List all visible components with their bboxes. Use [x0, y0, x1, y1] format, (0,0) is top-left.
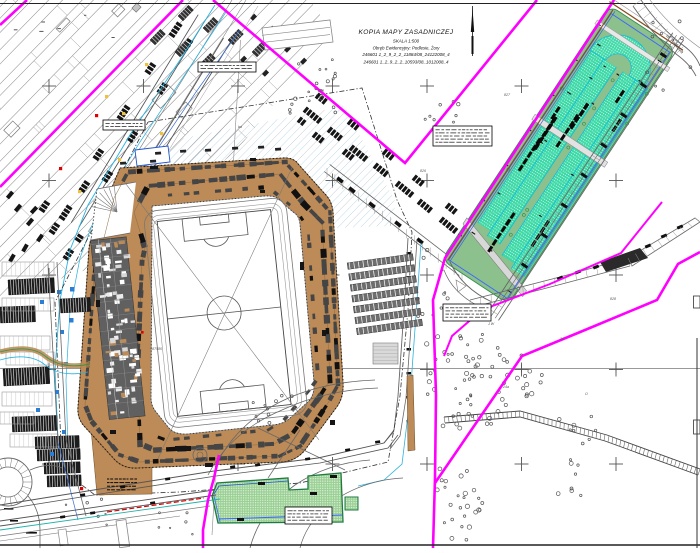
- svg-text:828: 828: [318, 89, 324, 93]
- svg-text:828: 828: [610, 297, 616, 301]
- svg-text:826: 826: [420, 169, 426, 173]
- svg-text:24a: 24a: [502, 385, 509, 389]
- svg-text:KOPIA MAPY ZASADNICZEJ: KOPIA MAPY ZASADNICZEJ: [359, 29, 454, 36]
- svg-text:827: 827: [504, 93, 511, 97]
- svg-text:246601 1_2_9_2_2_11884/08_2412: 246601 1_2_9_2_2_11884/08_24122008_4: [361, 52, 450, 57]
- svg-text:Obręb Ewidencyjny: Podlesie,: Obręb Ewidencyjny: Podlesie, Żory: [373, 46, 441, 51]
- svg-text:246601 1_2_9_2_2_10593/08_1012: 246601 1_2_9_2_2_10593/08_1012008_4: [362, 60, 449, 65]
- svg-text:O: O: [585, 392, 588, 396]
- svg-text:24: 24: [559, 337, 564, 341]
- svg-text:~87580: ~87580: [150, 347, 162, 351]
- svg-text:J W: J W: [487, 322, 495, 326]
- svg-text:SKALA 1:500: SKALA 1:500: [393, 39, 420, 44]
